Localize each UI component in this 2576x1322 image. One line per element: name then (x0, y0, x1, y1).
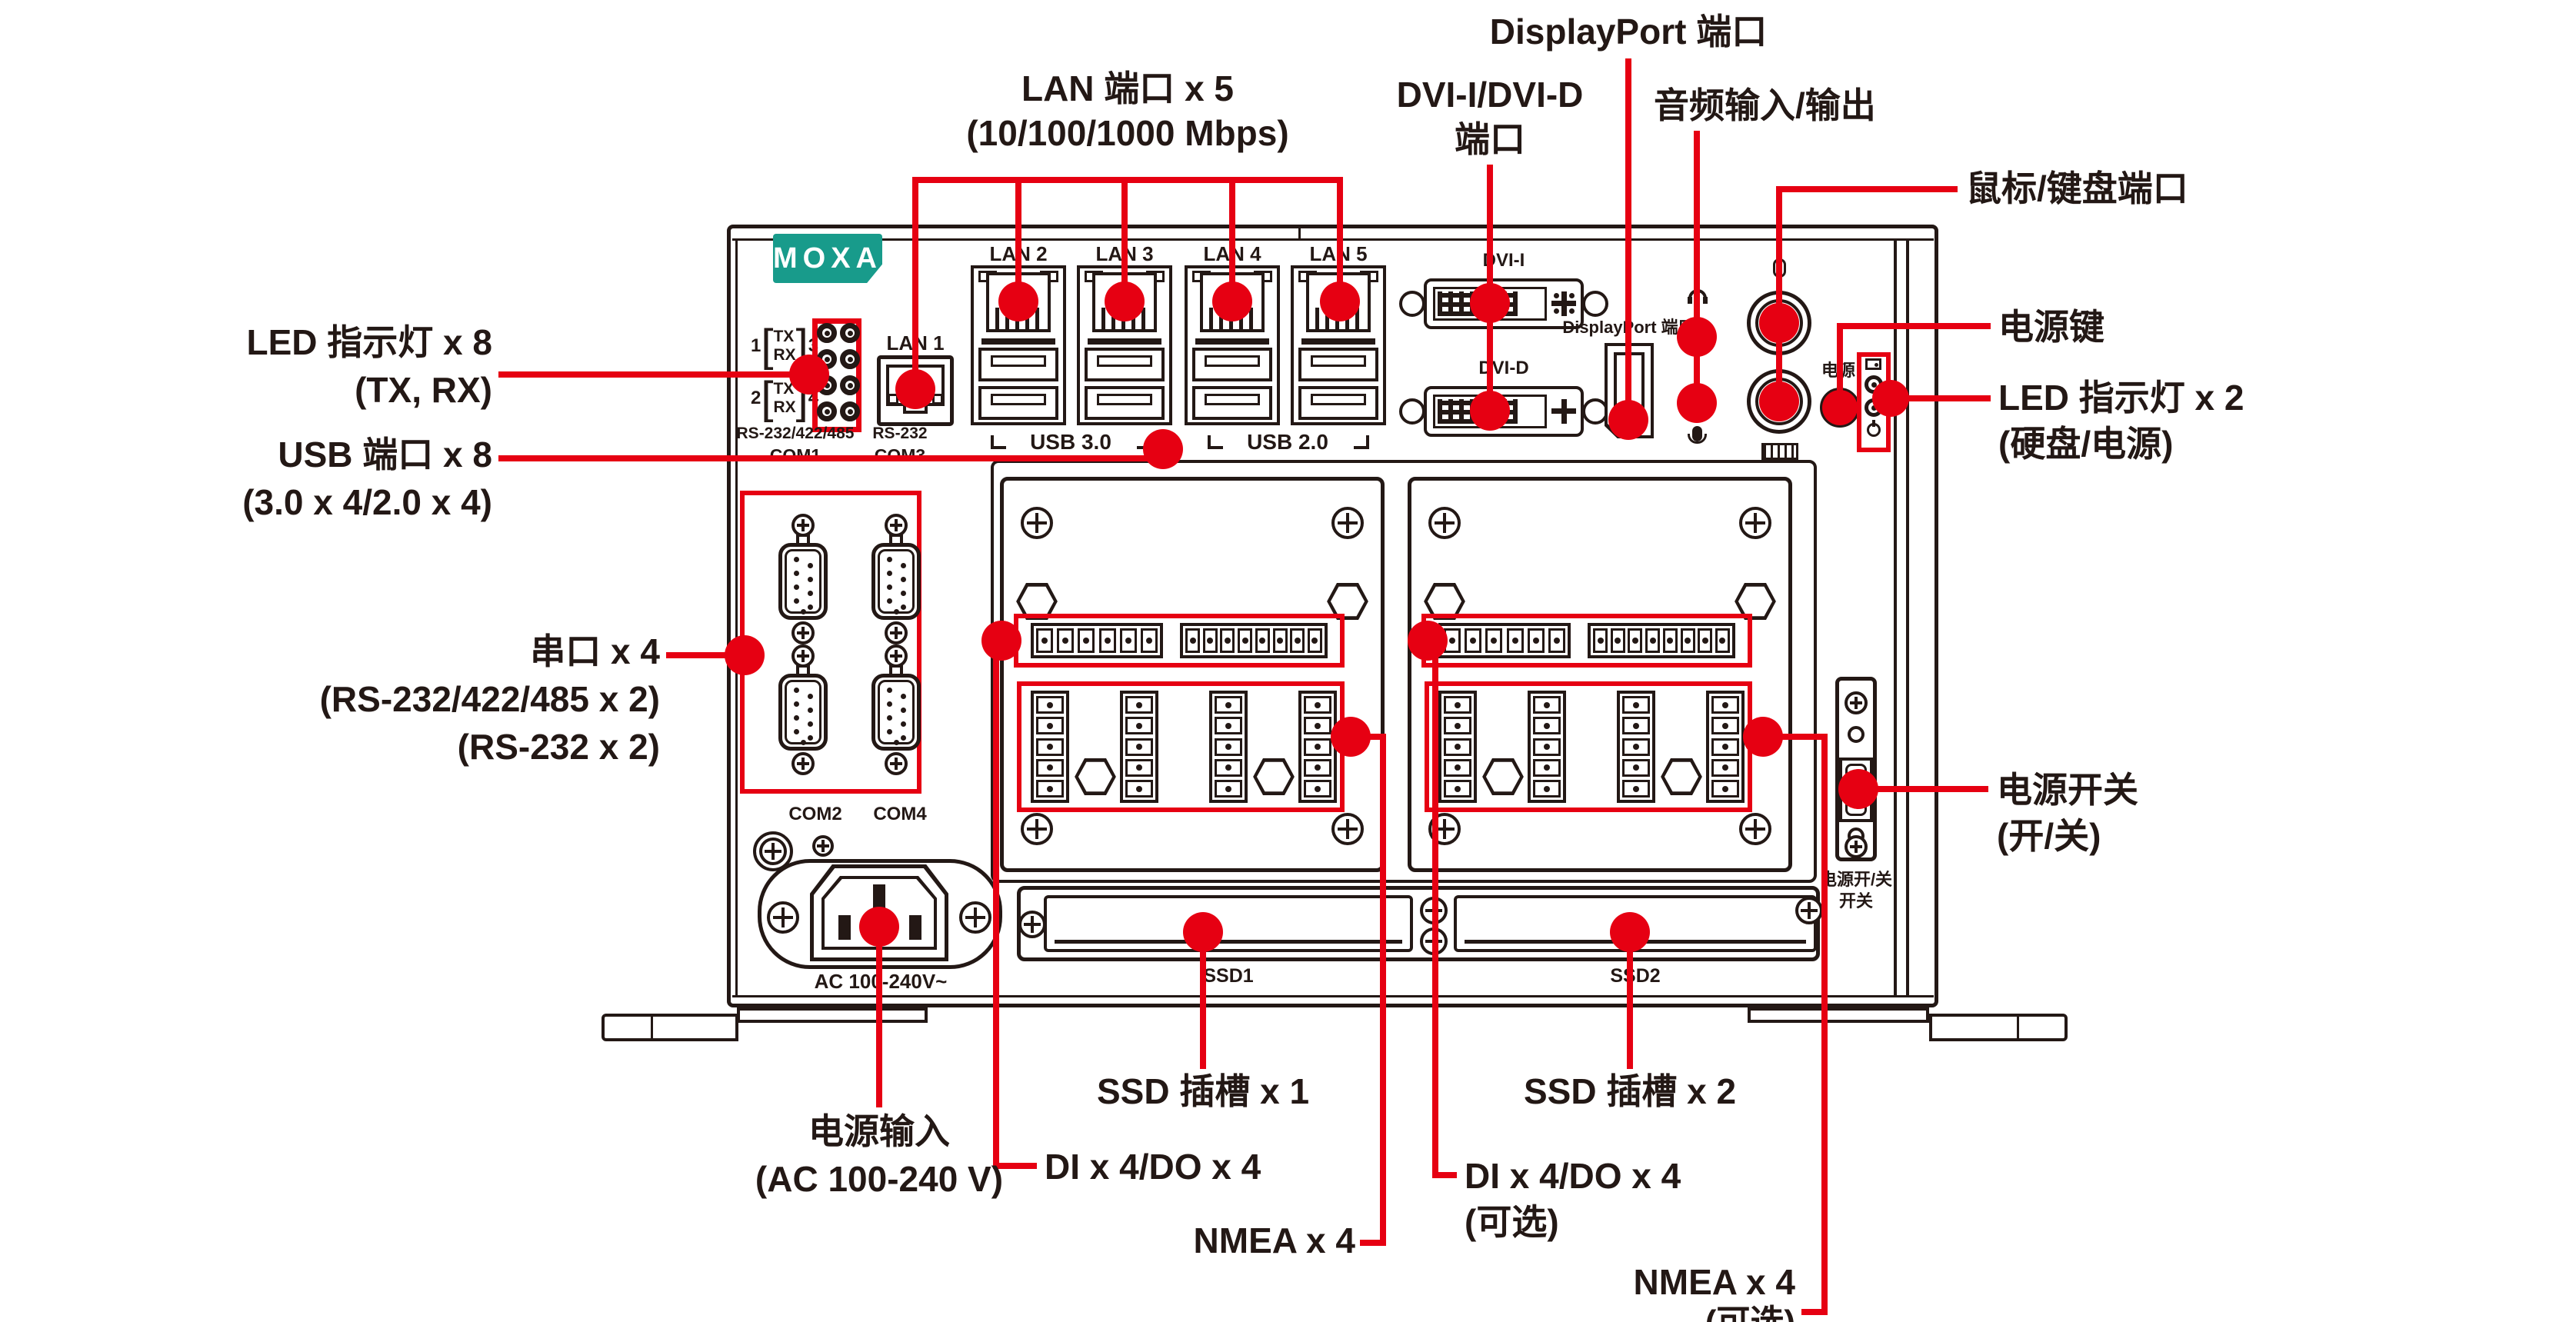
ssd2-panel-label: SSD2 (1558, 966, 1712, 987)
lan5-usb-tongue (1311, 355, 1366, 367)
lan2-usb-tongue (991, 355, 1046, 367)
ac-pin-line (838, 915, 851, 940)
callout-displayport: DisplayPort 端口 (1436, 11, 1821, 53)
callout-dido-left: DI x 4/DO x 4 (1045, 1146, 1261, 1188)
keyboard-icon (1761, 443, 1798, 460)
usb20-label: USB 2.0 (1226, 431, 1349, 455)
ssd2-callout-line (1627, 932, 1633, 1069)
db9-com2 (778, 644, 828, 775)
nmea-terminal (1528, 691, 1566, 803)
lan5-callout-dot (1320, 281, 1360, 321)
nmea-terminal (1120, 691, 1158, 803)
plate-screw (1428, 507, 1461, 539)
callout-lan-line2: (10/100/1000 Mbps) (935, 112, 1320, 155)
led8-callout-dot (789, 355, 829, 395)
power-symbol-stem (1872, 420, 1875, 427)
foot-right-seam (2017, 1016, 2019, 1039)
callout-ssd2: SSD 插槽 x 2 (1438, 1071, 1822, 1113)
power-button-callout-dot (1822, 390, 1858, 425)
callout-power-button: 电源键 (1998, 306, 2104, 348)
plate-screw (1739, 507, 1771, 539)
nmea-terminal (1438, 691, 1477, 803)
bracket-open: [ (761, 378, 773, 418)
lan3-usb-tongue (1097, 355, 1152, 367)
module-plate-right (1408, 477, 1792, 872)
tx-rx-led (840, 401, 860, 421)
tx-rx-led (840, 349, 860, 369)
nmea-terminal (1617, 691, 1655, 803)
foot-left-seam (651, 1016, 653, 1039)
usb20-bracket-right (1354, 435, 1369, 449)
callout-nmea-right-line1: NMEA x 4 (1488, 1261, 1795, 1304)
ssd1-callout-dot (1183, 912, 1223, 952)
callout-led8-line1: LED 指示灯 x 8 (185, 321, 492, 364)
led-group2-num-left: 2 (751, 388, 761, 409)
plate-screw (1739, 813, 1771, 845)
com4-label: COM4 (842, 804, 958, 824)
dvi-i-ear-left (1399, 291, 1425, 317)
dvi-i-analog-pin (1554, 308, 1559, 314)
usb30-label: USB 3.0 (1009, 431, 1132, 455)
nmea-terminal (1209, 691, 1248, 803)
nmea-terminal (1298, 691, 1337, 803)
hdd-icon (1865, 358, 1881, 370)
switch-hole-top (1848, 726, 1865, 743)
mousekb-callout-vline (1776, 186, 1782, 401)
callout-led8-line2: (TX, RX) (185, 369, 492, 411)
db9-com4 (871, 644, 921, 775)
usb8-callout-line (498, 455, 1160, 461)
callout-mouse-keyboard: 鼠标/键盘端口 (1966, 168, 2188, 210)
dvi-i-analog-pin (1554, 293, 1559, 298)
callout-serial-line2: (RS-232/422/485 x 2) (275, 678, 660, 721)
powerswitch-callout-dot (1838, 769, 1878, 809)
ground-screw (759, 837, 787, 865)
callout-ssd1: SSD 插槽 x 1 (1011, 1071, 1395, 1113)
dido-left-callout-vline (993, 641, 999, 1169)
audio-callout-line (1694, 131, 1700, 406)
plate-screw (1331, 813, 1364, 845)
chassis-bottom-inner-line (732, 995, 1934, 997)
lan4-usb-tongue (1205, 394, 1260, 405)
lan5-separator (1301, 338, 1375, 345)
dvi-d-ear-left (1399, 398, 1425, 425)
lan3-usb-tongue (1097, 394, 1152, 405)
dido-left-callout-dot (981, 621, 1021, 661)
lan4-usb-tongue (1205, 355, 1260, 367)
callout-dvi-line2: 端口 (1298, 118, 1682, 161)
dido-right-block-b (1588, 623, 1735, 658)
tx-label: TX (773, 328, 795, 346)
ground-terminal (812, 835, 834, 857)
usb30-bracket-left (991, 435, 1006, 449)
dido-left-block-b (1180, 623, 1328, 658)
plate-screw (1331, 507, 1364, 539)
ssd-bay-screw (1018, 911, 1046, 938)
led8-callout-line (498, 371, 808, 378)
nmea-left-callout-tick (1360, 1240, 1386, 1246)
module-plate-left (1000, 477, 1385, 872)
callout-lan-line1: LAN 端口 x 5 (935, 68, 1320, 110)
dido-left-block-a (1031, 623, 1163, 658)
dvi-d-panel-label: DVI-D (1427, 358, 1581, 378)
ssd-bay-screw (1795, 897, 1823, 924)
db9-com1 (778, 514, 828, 644)
ps2-keyboard-callout-dot (1759, 381, 1799, 421)
headphone-icon-pad (1703, 297, 1708, 304)
panel-diagram: MOXA 1 [ TX RX ] 3 2 [ TX RX ] 4 RS-232/… (0, 0, 2576, 1322)
switch-panel-label-line1: 电源开/关 (1800, 871, 1912, 889)
bracket-open: [ (761, 326, 773, 366)
powerinput-callout-line (876, 927, 882, 1107)
powerinput-callout-dot (859, 907, 899, 947)
led-group1-num-left: 1 (751, 335, 761, 357)
usb20-bracket-left (1208, 435, 1223, 449)
lan3-callout-dot (1105, 281, 1145, 321)
lan5-usb-tongue (1311, 394, 1366, 405)
callout-usb8-line2: (3.0 x 4/2.0 x 4) (185, 481, 492, 524)
lan2-separator (981, 338, 1055, 345)
usb8-callout-dot (1143, 429, 1183, 469)
ssd2-callout-dot (1610, 912, 1650, 952)
nmea-right-callout-dot (1743, 717, 1783, 757)
callout-power-switch-line1: 电源开关 (1997, 769, 2138, 811)
lan-callout-bracket (912, 177, 1343, 183)
foot-right (1929, 1014, 2068, 1041)
nmea-left-callout-vline (1380, 734, 1386, 1246)
lan2-usb-tongue (991, 394, 1046, 405)
dido-right-callout-hline (1432, 1172, 1457, 1178)
ac-inlet-screw-left (767, 901, 799, 934)
plate-screw (1021, 507, 1053, 539)
callout-led2-line2: (硬盘/电源) (1998, 423, 2173, 465)
lan1-callout-line (912, 177, 918, 391)
callout-led2-line1: LED 指示灯 x 2 (1998, 377, 2244, 419)
audio-in-callout-dot (1677, 383, 1717, 423)
callout-usb8-line1: USB 端口 x 8 (185, 434, 492, 476)
nmea-right-callout-vline (1821, 734, 1828, 1315)
dido-right-callout-dot (1408, 621, 1448, 661)
ps2-mouse-callout-dot (1759, 303, 1799, 343)
lan1-callout-dot (895, 369, 935, 409)
callout-audio: 音频输入/输出 (1654, 85, 1876, 127)
callout-nmea-left: NMEA x 4 (1048, 1220, 1355, 1262)
foot-left (602, 1014, 738, 1041)
plate-screw (1021, 813, 1053, 845)
dvi-i-cross-h (1551, 301, 1576, 306)
powerbtn-callout-hline (1837, 323, 1991, 329)
callout-dido-right-line1: DI x 4/DO x 4 (1465, 1155, 1681, 1197)
ac-pin-neutral (909, 915, 921, 940)
dvi-d-ear-right (1582, 398, 1608, 425)
dvi-i-analog-pin (1569, 308, 1575, 314)
callout-serial-line3: (RS-232 x 2) (275, 726, 660, 768)
led2-callout-dot (1872, 380, 1909, 417)
dvi-i-ear-right (1582, 291, 1608, 317)
ssd1-panel-label: SSD1 (1151, 966, 1305, 987)
lan3-separator (1088, 338, 1161, 345)
moxa-logo: MOXA (773, 234, 882, 283)
nmea-right-callout-tick (1801, 1309, 1828, 1315)
switch-screw-bottom (1845, 835, 1868, 858)
callout-serial-line1: 串口 x 4 (275, 631, 660, 673)
dvi-i-analog-pin (1569, 293, 1575, 298)
nmea-left-callout-dot (1331, 717, 1371, 757)
chassis-left-inner-line (735, 240, 738, 995)
dvi-d-cross-h (1551, 408, 1576, 414)
led-group1-txrx: TX RX (773, 328, 795, 365)
nmea-terminal (1031, 691, 1069, 803)
callout-dvi-line1: DVI-I/DVI-D (1298, 74, 1682, 116)
foot-left-step (737, 1007, 928, 1023)
serial-callout-dot (725, 635, 765, 675)
dvi-d-callout-dot (1470, 391, 1510, 431)
mousekb-callout-hline (1776, 186, 1958, 192)
dvi-i-callout-dot (1470, 283, 1510, 323)
rx-label: RX (773, 398, 795, 417)
tx-rx-led (817, 401, 837, 421)
callout-power-input-line2: (AC 100-240 V) (687, 1158, 1071, 1200)
chassis-top-seam (1298, 226, 1301, 239)
callout-dido-right-line2: (可选) (1465, 1201, 1559, 1244)
displayport-callout-dot (1608, 400, 1648, 440)
lan4-separator (1195, 338, 1269, 345)
dvi-i-panel-label: DVI-I (1427, 251, 1581, 271)
nmea-terminal (1706, 691, 1745, 803)
foot-right-step (1748, 1007, 1929, 1023)
ac-inlet-screw-right (959, 901, 991, 934)
headphone-icon-pad (1688, 297, 1692, 304)
powerswitch-callout-line (1863, 786, 1988, 792)
lan4-callout-dot (1212, 281, 1252, 321)
ssd1-tray-slot (1055, 940, 1402, 944)
hdd-icon-dot (1875, 363, 1878, 367)
ssd1-callout-line (1200, 932, 1206, 1069)
tx-rx-led (817, 323, 837, 343)
db9-com3 (871, 514, 921, 644)
tx-rx-led (840, 323, 860, 343)
switch-screw-top (1845, 691, 1868, 714)
com3-type-label: RS-232 (823, 425, 977, 442)
dido-right-block-a (1438, 623, 1571, 658)
audio-out-callout-dot (1677, 317, 1717, 357)
callout-power-switch-line2: (开/关) (1997, 815, 2101, 857)
moxa-logo-text: MOXA (773, 242, 882, 275)
callout-power-input-line1: 电源输入 (687, 1111, 1071, 1153)
callout-nmea-right-line2: (可选) (1488, 1303, 1795, 1322)
lan2-callout-dot (998, 281, 1038, 321)
tx-rx-led (840, 375, 860, 395)
